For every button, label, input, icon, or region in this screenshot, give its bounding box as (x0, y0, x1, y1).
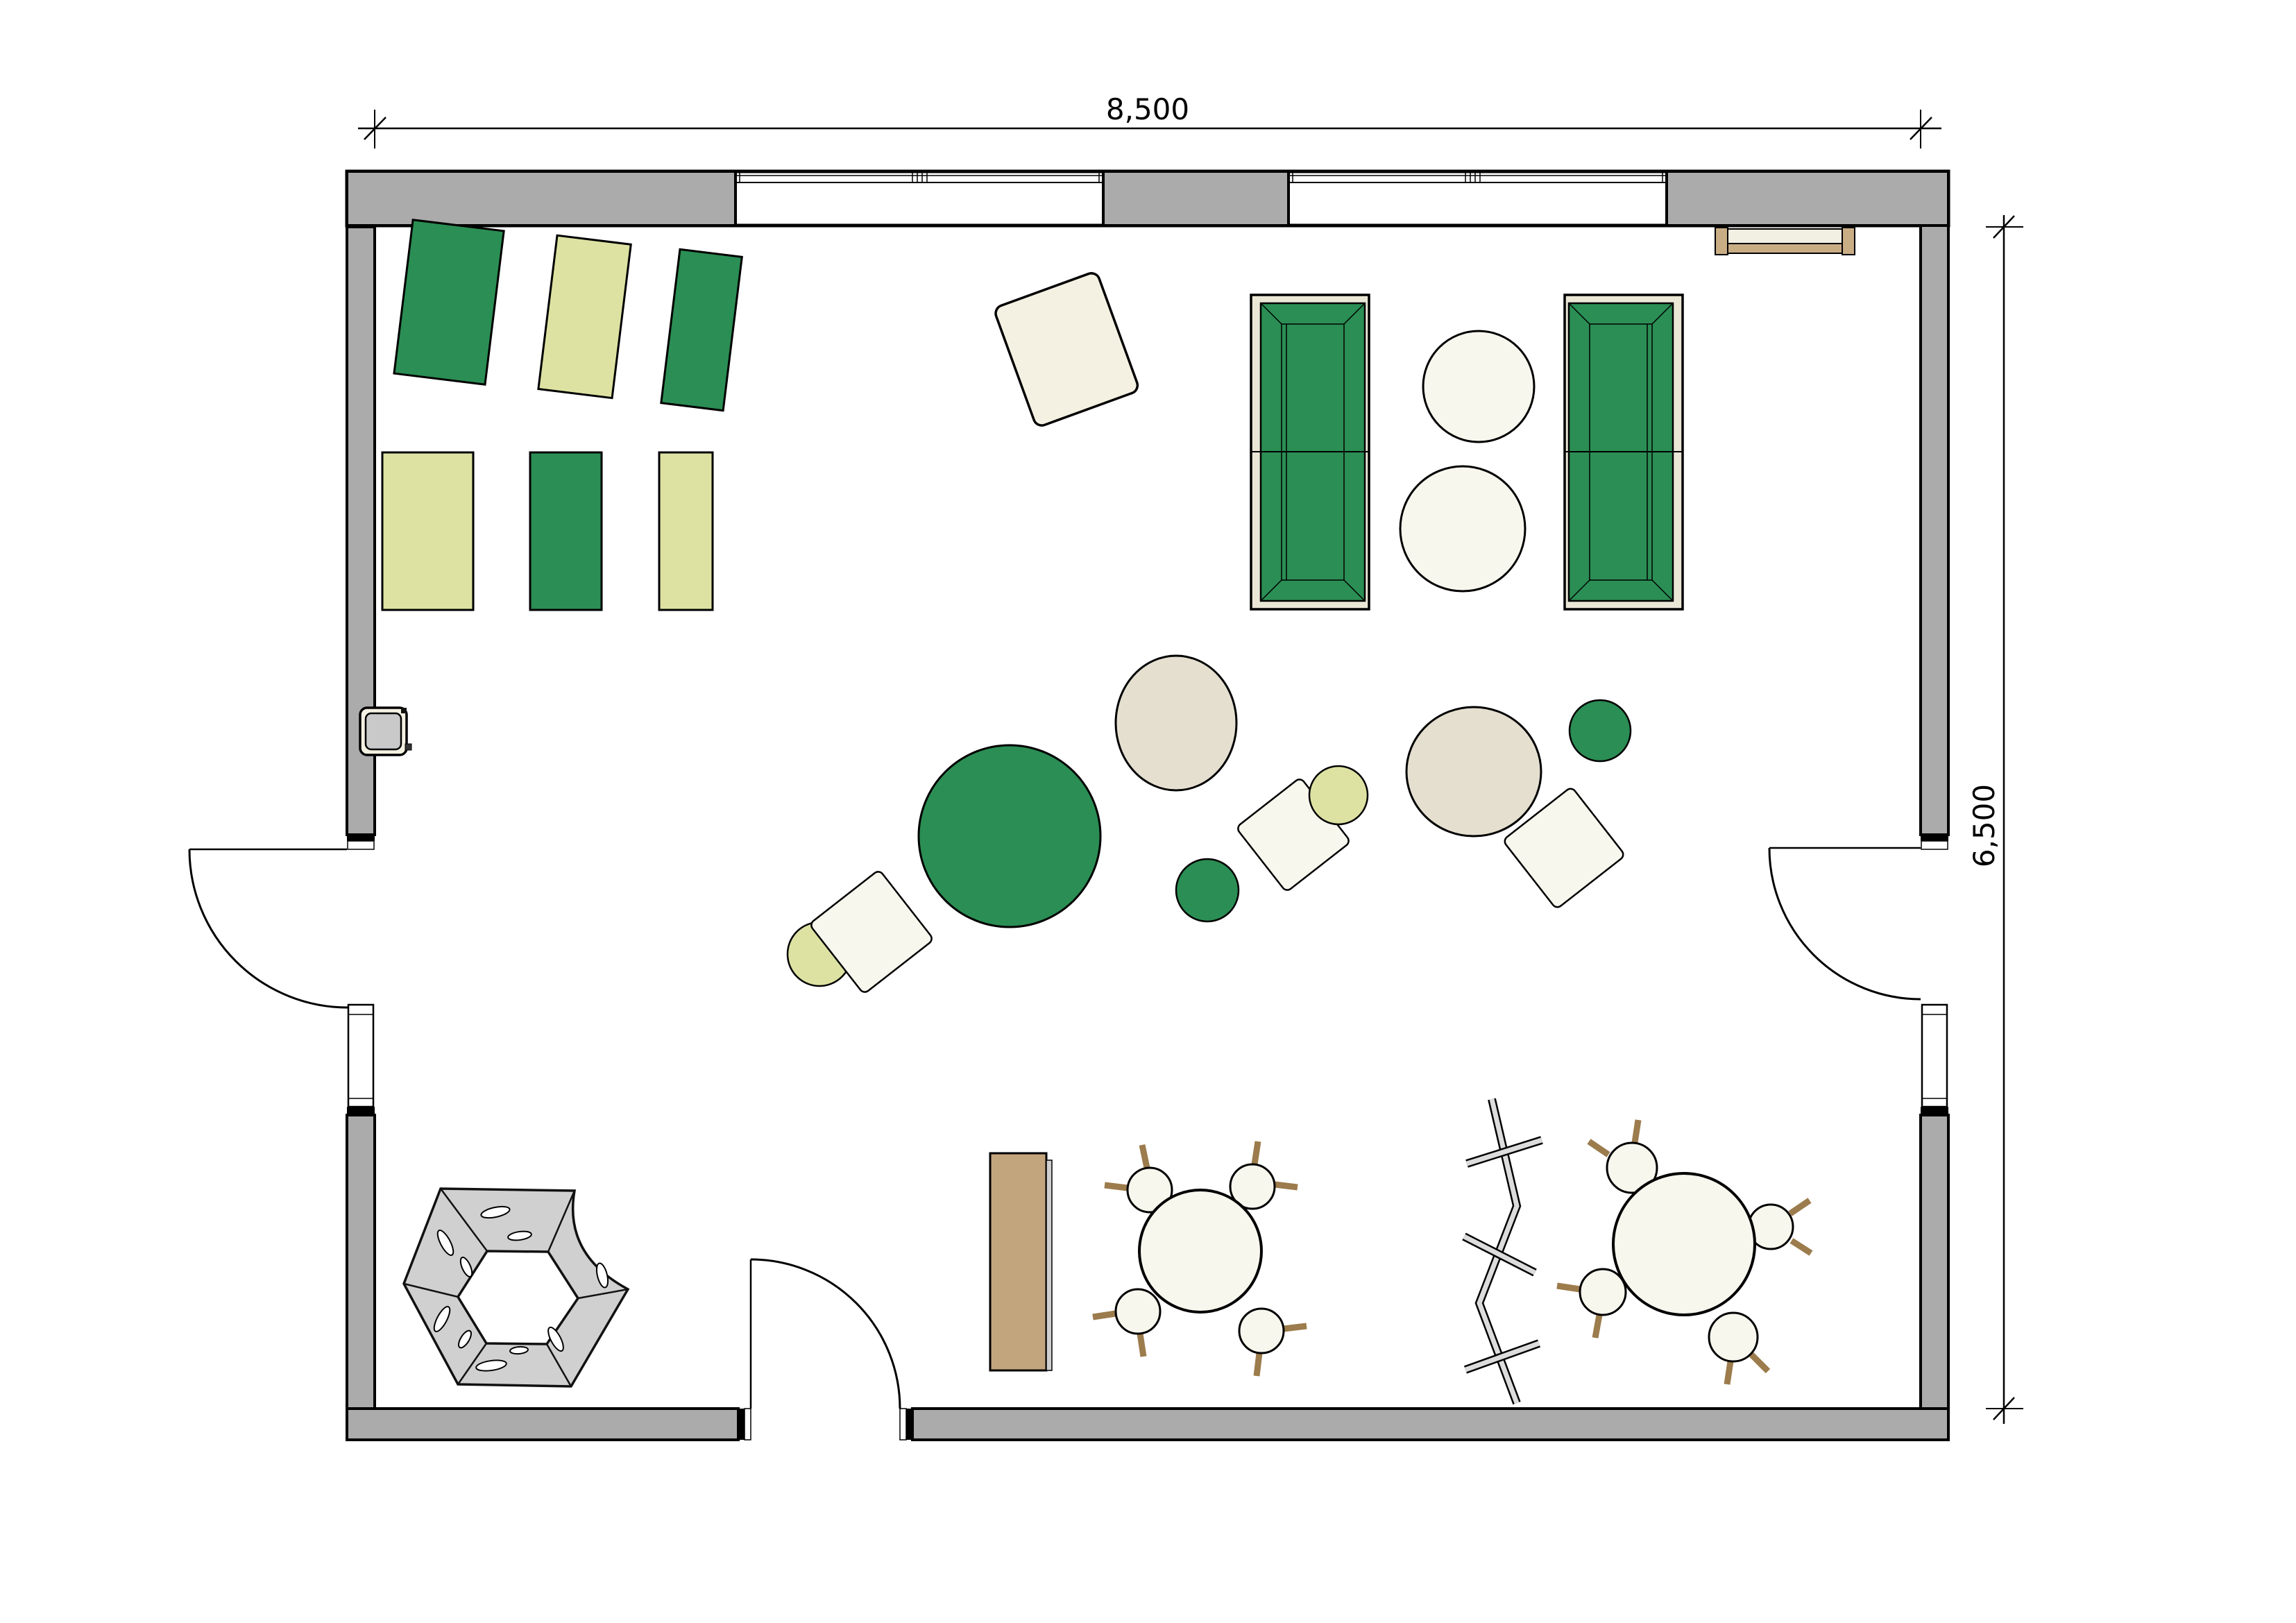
bench-post (1715, 228, 1728, 255)
table-group-1 (1093, 1141, 1307, 1376)
chair-leg (1635, 1120, 1638, 1143)
wall-pier (347, 171, 735, 226)
bottom-wall-left (347, 1409, 738, 1440)
door-jamb (900, 1409, 906, 1440)
bench-rail-top (1722, 229, 1848, 244)
chair-leg (1140, 1334, 1143, 1357)
chair-leg (1727, 1361, 1730, 1384)
chair (1116, 1289, 1160, 1334)
chair-leg (1792, 1241, 1811, 1253)
sleeping-mat-yellow (382, 452, 473, 610)
chair-leg (1275, 1184, 1298, 1187)
cabinet (990, 1153, 1052, 1370)
chair-leg (1751, 1354, 1768, 1371)
sleeping-mat-yellow (659, 452, 713, 610)
cushion-round-yellow (1309, 766, 1368, 824)
wall-cap (738, 1409, 745, 1440)
hexagon-play-structure (404, 1189, 628, 1386)
changing-unit-inner (366, 713, 401, 749)
door-panel (1922, 1005, 1947, 1107)
floor-plan-svg: 8,500 6,500 (0, 0, 2296, 1623)
sofa-left (1251, 295, 1369, 609)
door-bottom (751, 1259, 900, 1409)
round-table (1139, 1190, 1261, 1312)
bench-post (1842, 228, 1855, 255)
sleeping-mats (382, 220, 742, 610)
play-mat-cream (994, 271, 1140, 427)
unit-detail (401, 708, 407, 713)
unit-knob (405, 744, 411, 750)
wall-bench (1715, 228, 1855, 255)
door-left (189, 849, 373, 1107)
sofa-right (1565, 295, 1683, 609)
chair-leg (1284, 1326, 1307, 1329)
door-jamb (745, 1409, 751, 1440)
door-swing-arc (1769, 848, 1921, 999)
sleeping-mat-green (394, 220, 504, 384)
folding-screen (1464, 1099, 1542, 1403)
dimension-label-width: 8,500 (1106, 92, 1189, 126)
side-table (1400, 466, 1525, 591)
table-group-2 (1557, 1120, 1811, 1384)
bottom-wall-right (912, 1409, 1948, 1440)
floor-cushions (788, 656, 1631, 994)
chair-leg (1257, 1353, 1259, 1376)
chair-leg (1595, 1315, 1599, 1338)
chair-leg (1589, 1141, 1608, 1155)
sleeping-mat-green (530, 452, 602, 610)
dimension-top: 8,500 (358, 92, 1941, 148)
wall-cap (347, 834, 375, 841)
cushion-round-green (1176, 859, 1239, 921)
cushion-round-green-large (919, 745, 1100, 927)
sleeping-mat-yellow (538, 235, 631, 398)
chair (1239, 1309, 1284, 1353)
wall-pier (1103, 171, 1289, 226)
hexagon-ring (404, 1189, 628, 1386)
right-wall-upper (1921, 226, 1948, 835)
round-table (1613, 1173, 1755, 1315)
wall-pier (1667, 171, 1948, 226)
dimension-right: 6,500 (1967, 215, 2023, 1424)
chair-leg (1557, 1286, 1580, 1289)
chair-leg (1255, 1141, 1258, 1164)
cabinet-edge (1046, 1160, 1052, 1370)
chair (1580, 1269, 1626, 1315)
door-swing-arc (751, 1259, 900, 1409)
left-wall-lower (347, 1115, 375, 1409)
changing-unit (360, 708, 411, 755)
chair (1709, 1313, 1758, 1361)
cushion-round-beige (1406, 707, 1541, 836)
side-table (1423, 331, 1534, 442)
wall-cap (1921, 834, 1948, 841)
cushion-round-beige (1116, 656, 1236, 790)
right-wall-lower (1921, 1115, 1948, 1409)
chair-leg (1093, 1314, 1116, 1317)
chair-leg (1105, 1185, 1128, 1188)
sleeping-mat-green (661, 249, 742, 410)
cushion-round-green (1570, 700, 1631, 761)
dimension-label-height: 6,500 (1967, 784, 2001, 867)
door-panel (348, 1005, 373, 1107)
door-right (1769, 848, 1947, 1107)
side-tables (1400, 331, 1534, 591)
cabinet-body (990, 1153, 1046, 1370)
bench-rail-bottom (1722, 244, 1848, 253)
door-swing-arc (189, 849, 348, 1008)
chair-leg (1790, 1200, 1810, 1214)
door-jamb (1921, 841, 1948, 849)
door-jamb (348, 841, 374, 849)
chair-leg (1142, 1145, 1147, 1168)
